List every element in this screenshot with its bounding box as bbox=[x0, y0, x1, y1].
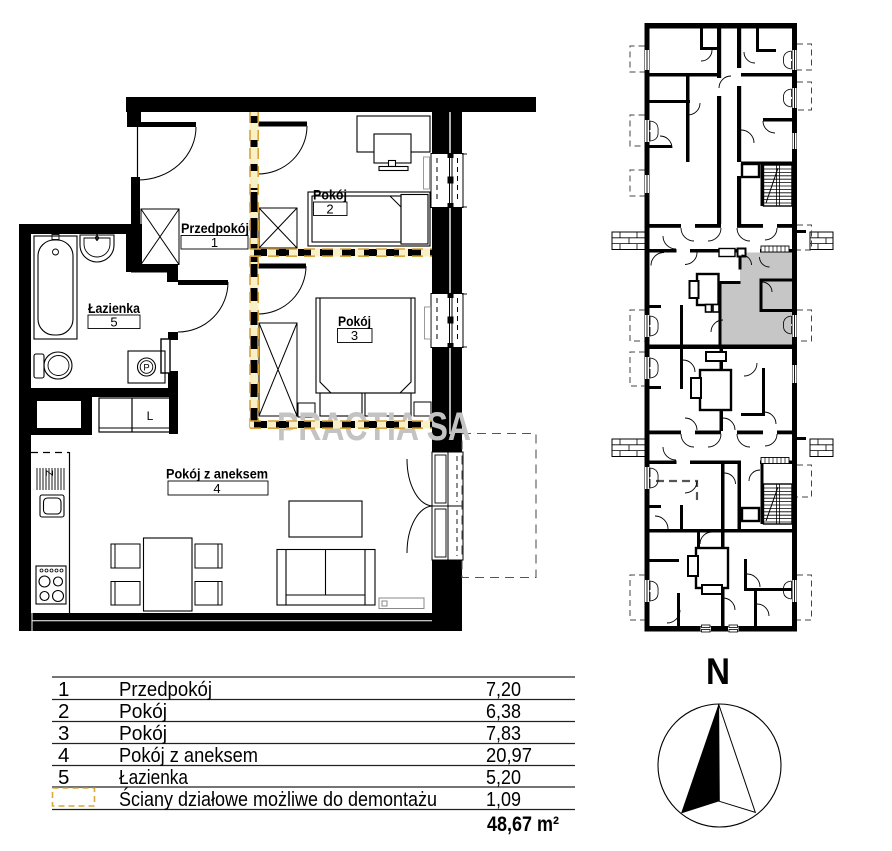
svg-text:Pokój z aneksem: Pokój z aneksem bbox=[166, 466, 268, 482]
svg-text:5,20: 5,20 bbox=[486, 766, 521, 789]
svg-text:3: 3 bbox=[351, 328, 358, 343]
svg-text:4: 4 bbox=[58, 744, 69, 767]
svg-text:Przedpokój: Przedpokój bbox=[119, 678, 212, 701]
svg-text:Pokój: Pokój bbox=[119, 722, 167, 745]
svg-text:1: 1 bbox=[211, 235, 218, 250]
svg-text:Ściany działowe możliwe do dem: Ściany działowe możliwe do demontażu bbox=[119, 787, 437, 811]
svg-text:1,09: 1,09 bbox=[486, 788, 521, 811]
svg-text:5: 5 bbox=[110, 314, 117, 329]
svg-text:Pokój z aneksem: Pokój z aneksem bbox=[119, 744, 258, 767]
svg-text:7,83: 7,83 bbox=[486, 722, 521, 745]
svg-text:1: 1 bbox=[58, 678, 69, 701]
svg-text:48,67 m²: 48,67 m² bbox=[487, 813, 559, 836]
svg-text:7,20: 7,20 bbox=[486, 678, 521, 701]
svg-text:4: 4 bbox=[213, 481, 220, 496]
svg-text:Pokój: Pokój bbox=[313, 187, 347, 203]
svg-text:2: 2 bbox=[58, 700, 69, 723]
svg-text:Łazienka: Łazienka bbox=[119, 766, 189, 789]
svg-text:Przedpokój: Przedpokój bbox=[181, 220, 249, 236]
svg-text:L: L bbox=[147, 409, 154, 423]
svg-text:5: 5 bbox=[58, 766, 69, 789]
svg-text:Z: Z bbox=[43, 470, 54, 476]
svg-text:Pokój: Pokój bbox=[119, 700, 167, 723]
svg-text:Pokój: Pokój bbox=[338, 313, 371, 329]
svg-text:2: 2 bbox=[326, 201, 333, 216]
svg-text:20,97: 20,97 bbox=[486, 744, 532, 767]
svg-text:N: N bbox=[706, 651, 730, 692]
svg-text:6,38: 6,38 bbox=[486, 700, 521, 723]
svg-text:3: 3 bbox=[58, 722, 69, 745]
svg-text:P: P bbox=[143, 363, 149, 374]
